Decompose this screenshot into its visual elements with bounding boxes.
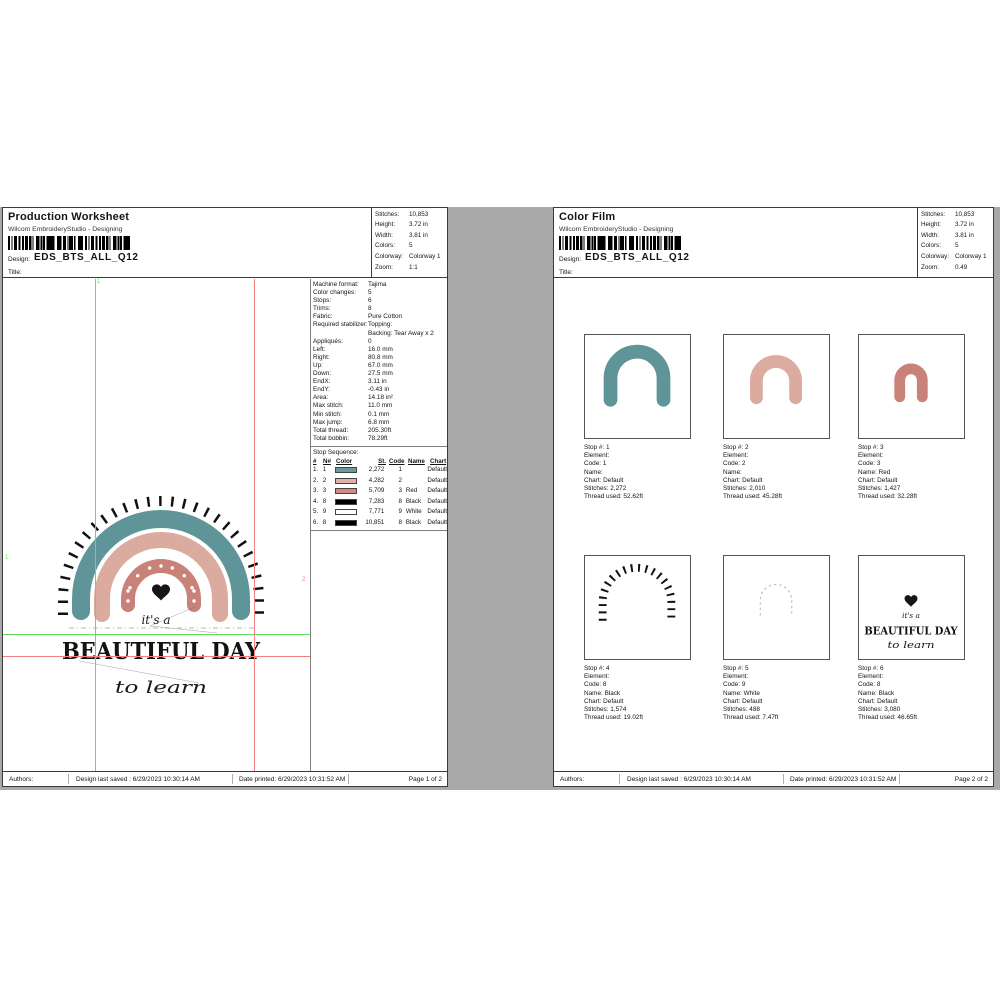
caption-line: Chart: Default	[858, 698, 965, 706]
authors-label: Authors:	[560, 776, 584, 783]
design-barcode	[559, 236, 681, 250]
info-row: Zoom: 1:1	[372, 261, 447, 272]
caption-line: Code: 1	[584, 460, 691, 468]
col-name: Name	[406, 458, 430, 467]
needle-number: 8	[323, 519, 336, 530]
needle-number: 1	[323, 466, 336, 477]
thread-name: Black	[404, 519, 427, 530]
stop-number: 1.	[313, 466, 323, 477]
info-row: Colorway: Colorway 1	[372, 250, 447, 261]
machine-info-label: Fabric:	[311, 313, 368, 321]
machine-info-label: Max jump:	[311, 419, 368, 427]
caption-line: Name:	[723, 469, 830, 477]
machine-info-row: Up: 67.0 mm	[311, 362, 447, 370]
caption-line: Code: 8	[584, 681, 691, 689]
thread-name	[404, 466, 427, 477]
machine-info-label: Total thread:	[311, 427, 368, 435]
info-row: Width: 3.81 in	[918, 229, 993, 240]
thread-code: 1	[387, 466, 404, 477]
machine-info-row: Max stitch: 11.0 mm	[311, 402, 447, 410]
info-row: Colorway: Colorway 1	[918, 250, 993, 261]
page-title: Color Film	[559, 211, 615, 223]
info-row: Colors: 5	[372, 240, 447, 251]
footer-divider	[232, 774, 233, 784]
stop-number: 5.	[313, 508, 323, 519]
info-row: Height: 3.72 in	[918, 219, 993, 230]
caption-line: Name: Black	[584, 690, 691, 698]
worksheet-header: Production Worksheet Wilcom EmbroiderySt…	[3, 208, 447, 278]
machine-info-label: Min stitch:	[311, 411, 368, 419]
teal-arch-layer	[585, 335, 690, 438]
col-color: Color	[336, 458, 365, 467]
caption-line: Element:	[858, 452, 965, 460]
caption-line: Element:	[858, 673, 965, 681]
info-value: Colorway 1	[409, 253, 441, 260]
stop-2-caption: Stop #: 2Element:Code: 2Name:Chart: Defa…	[723, 444, 830, 501]
stitch-count: 5,709	[364, 487, 388, 498]
caption-line: Stitches: 3,080	[858, 706, 965, 714]
caption-line: Stop #: 5	[723, 665, 830, 673]
needle-number: 3	[323, 487, 336, 498]
guide-label-1h: 1	[5, 555, 8, 561]
design-info-box: Stitches: 10,853 Height: 3.72 in Width: …	[917, 208, 993, 277]
beautiful-day-text: BEAUTIFUL DAY	[864, 624, 957, 637]
footer-divider	[783, 774, 784, 784]
caption-line: Chart: Default	[584, 477, 691, 485]
stop-3-preview	[858, 334, 965, 439]
info-value: Colorway 1	[955, 253, 987, 260]
text-layer: it's a BEAUTIFUL DAY to learn	[859, 556, 964, 659]
caption-line: Stop #: 4	[584, 665, 691, 673]
worksheet-footer: Authors: Design last saved : 6/29/2023 1…	[3, 771, 447, 786]
stop-1-preview	[584, 334, 691, 439]
stop-6-preview: it's a BEAUTIFUL DAY to learn	[858, 555, 965, 660]
thread-code: 2	[387, 477, 404, 488]
caption-line: Thread used: 46.65ft	[858, 714, 965, 722]
col-stitches: St.	[365, 458, 389, 467]
rainbow-design-artwork: it's a BEAUTIFUL DAY to learn	[49, 487, 269, 717]
pink-arch	[102, 540, 220, 614]
machine-info-value: Backing: Tear Away x 2	[368, 330, 447, 338]
color-film-page: Color Film Wilcom EmbroideryStudio - Des…	[553, 207, 994, 787]
color-film-footer: Authors: Design last saved : 6/29/2023 1…	[554, 771, 993, 786]
color-film-stop-6: it's a BEAUTIFUL DAY to learn Stop #: 6E…	[858, 555, 965, 722]
col-num: #	[313, 458, 323, 467]
info-row: Width: 3.81 in	[372, 229, 447, 240]
machine-info-row: Required stabilizer: Topping:	[311, 321, 447, 329]
thread-name	[404, 477, 427, 488]
footer-divider	[68, 774, 69, 784]
stop-number: 2.	[313, 477, 323, 488]
machine-info-row: Max jump: 6.8 mm	[311, 419, 447, 427]
design-name: EDS_BTS_ALL_Q12	[34, 252, 139, 263]
page-number: Page 1 of 2	[409, 776, 442, 783]
machine-info-label: Up:	[311, 362, 368, 370]
caption-line: Chart: Default	[723, 698, 830, 706]
machine-info-value: 11.0 mm	[368, 402, 447, 410]
guide-label-2h: 2	[302, 577, 305, 583]
machine-info-value: 0.1 mm	[368, 411, 447, 419]
machine-info-value: 16.0 mm	[368, 346, 447, 354]
info-label: Colors:	[375, 242, 395, 249]
machine-info-label: Appliqués:	[311, 338, 368, 346]
thread-code: 9	[387, 508, 404, 519]
machine-info-label: Color changes:	[311, 289, 368, 297]
pink-arch-layer	[724, 335, 829, 438]
thread-name: White	[404, 508, 427, 519]
heart-icon	[905, 595, 918, 607]
machine-info-value: Tajima	[368, 281, 447, 289]
needle-number: 9	[323, 508, 336, 519]
info-row: Height: 3.72 in	[372, 219, 447, 230]
title-label: Title:	[559, 269, 573, 276]
info-label: Width:	[921, 232, 939, 239]
info-value: 5	[955, 242, 959, 249]
info-label: Zoom:	[921, 264, 939, 271]
caption-line: Thread used: 45.28ft	[723, 493, 830, 501]
info-value: 0.49	[955, 264, 967, 271]
to-learn-text: to learn	[887, 640, 934, 651]
stop-3-caption: Stop #: 3Element:Code: 3Name: RedChart: …	[858, 444, 965, 501]
date-printed-text: Date printed: 6/29/2023 10:31:52 AM	[239, 776, 345, 783]
production-worksheet-page: Production Worksheet Wilcom EmbroiderySt…	[2, 207, 448, 787]
machine-info-row: Fabric: Pure Cotton	[311, 313, 447, 321]
caption-line: Thread used: 19.02ft	[584, 714, 691, 722]
machine-info-value: 6.8 mm	[368, 419, 447, 427]
stop-2-preview	[723, 334, 830, 439]
machine-info-value: Topping:	[368, 321, 447, 329]
black-ticks-layer	[585, 556, 690, 659]
machine-info-label: Max stitch:	[311, 402, 368, 410]
thread-name: Red	[404, 487, 427, 498]
caption-line: Element:	[584, 452, 691, 460]
col-code: Code	[389, 458, 406, 467]
design-info-box: Stitches: 10,853 Height: 3.72 in Width: …	[371, 208, 447, 277]
machine-info-row: Appliqués: 0	[311, 338, 447, 346]
page-number: Page 2 of 2	[955, 776, 988, 783]
thread-color-cell	[335, 487, 363, 498]
machine-info-row: Left: 16.0 mm	[311, 346, 447, 354]
thread-chart: Default	[427, 487, 447, 498]
caption-line: Name: Black	[858, 690, 965, 698]
design-barcode	[8, 236, 130, 250]
caption-line: Stitches: 2,010	[723, 485, 830, 493]
machine-info-label	[311, 330, 368, 338]
caption-line: Thread used: 7.47ft	[723, 714, 830, 722]
info-label: Stitches:	[375, 211, 399, 218]
thread-color-cell	[335, 498, 363, 509]
machine-info-label: Trims:	[311, 305, 368, 313]
machine-info-label: Down:	[311, 370, 368, 378]
thread-color-swatch	[335, 467, 357, 473]
stop-5-caption: Stop #: 5Element:Code: 9Name: WhiteChart…	[723, 665, 830, 722]
info-label: Height:	[375, 221, 395, 228]
machine-info-label: Machine format:	[311, 281, 368, 289]
info-label: Colors:	[921, 242, 941, 249]
caption-line: Code: 2	[723, 460, 830, 468]
caption-line: Stop #: 6	[858, 665, 965, 673]
its-a-text: it's a	[902, 611, 920, 620]
thread-chart: Default	[427, 519, 447, 530]
authors-label: Authors:	[9, 776, 33, 783]
stitch-count: 10,851	[364, 519, 388, 530]
design-canvas: it's a BEAUTIFUL DAY to learn	[3, 279, 310, 771]
stop-5-preview	[723, 555, 830, 660]
machine-info-row: Total bobbin: 78.29ft	[311, 435, 447, 443]
caption-line: Stop #: 3	[858, 444, 965, 452]
caption-line: Thread used: 32.28ft	[858, 493, 965, 501]
thread-chart: Default	[427, 508, 447, 519]
stitch-count: 7,283	[364, 498, 388, 509]
caption-line: Name:	[584, 469, 691, 477]
machine-info-label: Total bobbin:	[311, 435, 368, 443]
machine-info-label: Stops:	[311, 297, 368, 305]
white-dots-layer	[724, 556, 829, 659]
machine-info-row: Down: 27.5 mm	[311, 370, 447, 378]
machine-info-label: Required stabilizer:	[311, 321, 368, 329]
info-label: Colorway:	[375, 253, 403, 260]
machine-info-value: -0.43 in	[368, 386, 447, 394]
design-label: Design:	[8, 256, 30, 263]
stop-1-caption: Stop #: 1Element:Code: 1Name:Chart: Defa…	[584, 444, 691, 501]
info-label: Stitches:	[921, 211, 945, 218]
caption-line: Stitches: 1,427	[858, 485, 965, 493]
info-row: Zoom: 0.49	[918, 261, 993, 272]
caption-line: Element:	[584, 673, 691, 681]
machine-info-label: Left:	[311, 346, 368, 354]
stitch-count: 7,771	[364, 508, 388, 519]
caption-line: Name: Red	[858, 469, 965, 477]
last-saved-text: Design last saved : 6/29/2023 10:30:14 A…	[76, 776, 200, 783]
thread-name: Black	[404, 498, 427, 509]
machine-info-row: Min stitch: 0.1 mm	[311, 411, 447, 419]
thread-color-cell	[335, 519, 363, 530]
caption-line: Code: 9	[723, 681, 830, 689]
thread-code: 3	[387, 487, 404, 498]
thread-code: 8	[387, 519, 404, 530]
caption-line: Stop #: 2	[723, 444, 830, 452]
footer-divider	[348, 774, 349, 784]
machine-info-value: 205.30ft	[368, 427, 447, 435]
machine-info-value: Pure Cotton	[368, 313, 447, 321]
machine-info-value: 67.0 mm	[368, 362, 447, 370]
thread-chart: Default	[427, 498, 447, 509]
machine-info-row: Backing: Tear Away x 2	[311, 330, 447, 338]
stitch-count: 2,272	[364, 466, 388, 477]
thread-color-swatch	[335, 488, 357, 494]
machine-info-value: 8	[368, 305, 447, 313]
caption-line: Stitches: 488	[723, 706, 830, 714]
stop-6-caption: Stop #: 6Element:Code: 8Name: BlackChart…	[858, 665, 965, 722]
info-label: Height:	[921, 221, 941, 228]
horizontal-guide-green	[3, 634, 310, 635]
thread-color-swatch	[335, 509, 357, 515]
app-subtitle: Wilcom EmbroideryStudio - Designing	[559, 226, 673, 233]
machine-info-label: EndX:	[311, 378, 368, 386]
machine-info-value: 6	[368, 297, 447, 305]
info-value: 5	[409, 242, 413, 249]
info-value: 10,853	[409, 211, 428, 218]
color-film-header: Color Film Wilcom EmbroideryStudio - Des…	[554, 208, 993, 278]
machine-info-value: 0	[368, 338, 447, 346]
footer-divider	[619, 774, 620, 784]
machine-info-value: 5	[368, 289, 447, 297]
stop-sequence-row: 6. 8 10,851 8 Black Default	[311, 519, 447, 530]
beautiful-day-text: BEAUTIFUL DAY	[62, 638, 261, 665]
design-name: EDS_BTS_ALL_Q12	[585, 252, 690, 263]
caption-line: Stitches: 1,574	[584, 706, 691, 714]
stop-4-caption: Stop #: 4Element:Code: 8Name: BlackChart…	[584, 665, 691, 722]
caption-line: Code: 3	[858, 460, 965, 468]
thread-color-cell	[335, 466, 363, 477]
stop-4-preview	[584, 555, 691, 660]
thread-code: 8	[387, 498, 404, 509]
machine-info-row: Trims: 8	[311, 305, 447, 313]
caption-line: Chart: Default	[584, 698, 691, 706]
stop-number: 6.	[313, 519, 323, 530]
last-saved-text: Design last saved : 6/29/2023 10:30:14 A…	[627, 776, 751, 783]
thread-chart: Default	[427, 466, 447, 477]
guide-label-1v: 1	[97, 279, 100, 285]
stop-sequence-header: # N# Color St. Code Name Chart	[311, 458, 447, 467]
stop-sequence-row: 4. 8 7,283 8 Black Default	[311, 498, 447, 509]
info-value: 3.81 in	[955, 232, 974, 239]
caption-line: Code: 8	[858, 681, 965, 689]
machine-info-row: Right: 80.8 mm	[311, 354, 447, 362]
stop-number: 3.	[313, 487, 323, 498]
stop-sequence-title: Stop Sequence:	[311, 446, 447, 458]
needle-number: 8	[323, 498, 336, 509]
machine-info-row: Color changes: 5	[311, 289, 447, 297]
info-value: 3.72 in	[409, 221, 428, 228]
title-label: Title:	[8, 269, 22, 276]
thread-chart: Default	[427, 477, 447, 488]
machine-info-value: 27.5 mm	[368, 370, 447, 378]
machine-info-row: EndX: 3.11 in	[311, 378, 447, 386]
color-film-stop-5: Stop #: 5Element:Code: 9Name: WhiteChart…	[723, 555, 830, 722]
to-learn-text: to learn	[115, 678, 207, 698]
stop-number: 4.	[313, 498, 323, 509]
machine-info-label: EndY:	[311, 386, 368, 394]
info-value: 3.81 in	[409, 232, 428, 239]
its-a-text: it's a	[141, 613, 170, 627]
info-label: Zoom:	[375, 264, 393, 271]
design-label: Design:	[559, 256, 581, 263]
caption-line: Chart: Default	[723, 477, 830, 485]
info-value: 10,853	[955, 211, 974, 218]
vertical-guide-red	[254, 279, 255, 771]
caption-line: Name: White	[723, 690, 830, 698]
col-chart: Chart	[430, 458, 447, 467]
stop-sequence-row: 5. 9 7,771 9 White Default	[311, 508, 447, 519]
date-printed-text: Date printed: 6/29/2023 10:31:52 AM	[790, 776, 896, 783]
heart-icon	[152, 584, 170, 600]
color-film-stop-3: Stop #: 3Element:Code: 3Name: RedChart: …	[858, 334, 965, 501]
stop-sequence-row: 3. 3 5,709 3 Red Default	[311, 487, 447, 498]
vertical-guide-green	[95, 279, 96, 771]
info-value: 1:1	[409, 264, 418, 271]
machine-info-row: Machine format: Tajima	[311, 281, 447, 289]
machine-info-list: Machine format: Tajima Color changes: 5 …	[311, 281, 447, 443]
color-film-stop-1: Stop #: 1Element:Code: 1Name:Chart: Defa…	[584, 334, 691, 501]
machine-info-label: Right:	[311, 354, 368, 362]
horizontal-guide-red	[3, 656, 310, 657]
thread-color-cell	[335, 477, 363, 488]
machine-info-panel: Machine format: Tajima Color changes: 5 …	[310, 279, 447, 771]
needle-number: 2	[323, 477, 336, 488]
stitch-count: 4,282	[364, 477, 388, 488]
caption-line: Chart: Default	[858, 477, 965, 485]
machine-info-row: Total thread: 205.30ft	[311, 427, 447, 435]
caption-line: Element:	[723, 673, 830, 681]
col-needle: N#	[323, 458, 336, 467]
machine-info-row: Area: 14.18 in²	[311, 394, 447, 402]
stop-sequence-table: 1. 1 2,272 1 Default 2. 2 4,282 2 Defaul…	[311, 466, 447, 531]
caption-line: Thread used: 52.62ft	[584, 493, 691, 501]
page-title: Production Worksheet	[8, 211, 129, 223]
info-row: Colors: 5	[918, 240, 993, 251]
red-arch-layer	[859, 335, 964, 438]
color-film-stop-2: Stop #: 2Element:Code: 2Name:Chart: Defa…	[723, 334, 830, 501]
thread-color-swatch	[335, 478, 357, 484]
thread-color-swatch	[335, 499, 357, 505]
color-film-stop-4: Stop #: 4Element:Code: 8Name: BlackChart…	[584, 555, 691, 722]
app-subtitle: Wilcom EmbroideryStudio - Designing	[8, 226, 122, 233]
info-label: Colorway:	[921, 253, 949, 260]
stop-sequence-row: 1. 1 2,272 1 Default	[311, 466, 447, 477]
info-row: Stitches: 10,853	[372, 208, 447, 219]
machine-info-row: EndY: -0.43 in	[311, 386, 447, 394]
thread-color-cell	[335, 508, 363, 519]
caption-line: Element:	[723, 452, 830, 460]
info-row: Stitches: 10,853	[918, 208, 993, 219]
machine-info-row: Stops: 6	[311, 297, 447, 305]
machine-info-value: 78.29ft	[368, 435, 447, 443]
caption-line: Stitches: 2,272	[584, 485, 691, 493]
machine-info-value: 80.8 mm	[368, 354, 447, 362]
info-value: 3.72 in	[955, 221, 974, 228]
footer-divider	[899, 774, 900, 784]
caption-line: Stop #: 1	[584, 444, 691, 452]
machine-info-value: 3.11 in	[368, 378, 447, 386]
machine-info-value: 14.18 in²	[368, 394, 447, 402]
machine-info-label: Area:	[311, 394, 368, 402]
info-label: Width:	[375, 232, 393, 239]
stop-sequence-row: 2. 2 4,282 2 Default	[311, 477, 447, 488]
thread-color-swatch	[335, 520, 357, 526]
